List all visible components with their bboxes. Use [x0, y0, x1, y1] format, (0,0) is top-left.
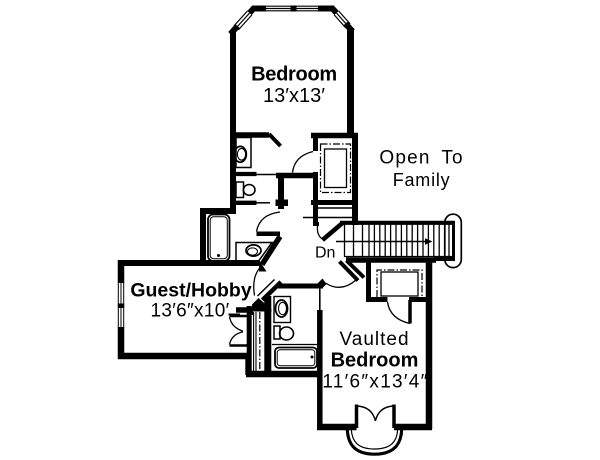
svg-text:Guest/Hobby: Guest/Hobby — [130, 280, 251, 302]
svg-text:13′6″x10′: 13′6″x10′ — [151, 301, 230, 322]
svg-text:Vaulted: Vaulted — [339, 329, 409, 350]
svg-text:13′x13′: 13′x13′ — [263, 85, 325, 107]
svg-text:Bedroom: Bedroom — [331, 350, 419, 372]
svg-text:Family: Family — [393, 170, 451, 190]
svg-text:Dn: Dn — [315, 245, 335, 262]
svg-text:Bedroom: Bedroom — [251, 64, 337, 86]
svg-text:Open To: Open To — [379, 148, 463, 169]
svg-text:11′6″x13′4″: 11′6″x13′4″ — [322, 372, 428, 393]
